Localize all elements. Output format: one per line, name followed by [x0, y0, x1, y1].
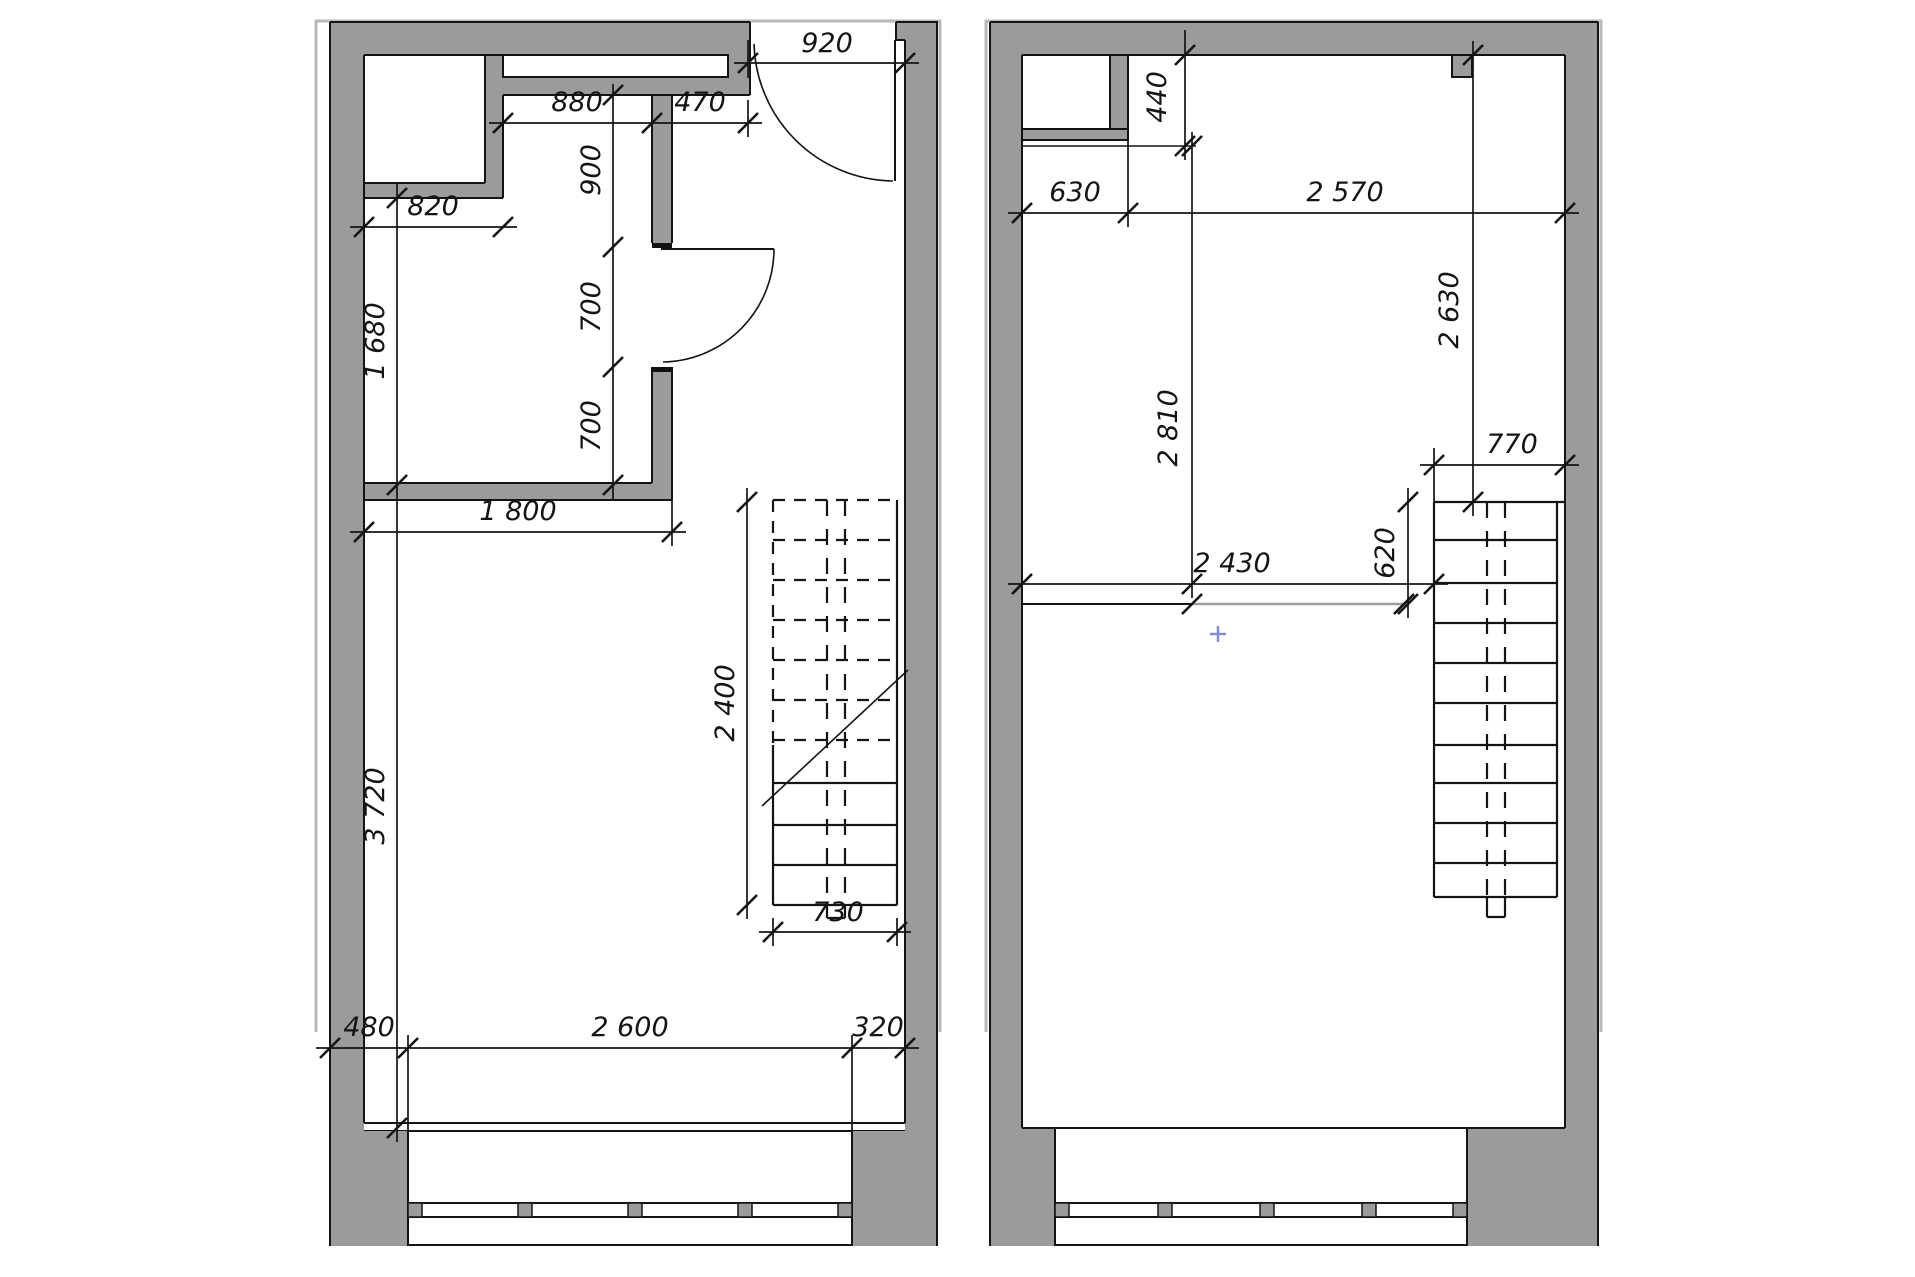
dim-label-480: 480 — [343, 1012, 395, 1043]
dim-label-900: 900 — [576, 144, 607, 196]
dim-label-440: 440 — [1142, 71, 1173, 123]
dim-label-2430: 2 430 — [1193, 548, 1270, 579]
dim-label-630: 630 — [1049, 177, 1101, 208]
dim-label-2570: 2 570 — [1306, 177, 1383, 208]
dim-label-3720: 3 720 — [360, 767, 391, 844]
dim-label-2600: 2 600 — [591, 1012, 668, 1043]
dim-label-770: 770 — [1486, 429, 1538, 460]
wall-niche — [503, 55, 728, 77]
dim-label-1680: 1 680 — [360, 302, 391, 379]
dim-label-2630: 2 630 — [1434, 271, 1465, 348]
dim-label-700-upper: 700 — [576, 281, 607, 333]
dim-label-1800: 1 800 — [479, 496, 556, 527]
dim-label-920: 920 — [801, 28, 853, 59]
floor-plan-drawing: 920 880 470 900 700 700 820 1 680 1 800 … — [0, 0, 1915, 1277]
loggia-window-band — [1055, 1203, 1467, 1217]
door-jamb-cap — [652, 367, 672, 372]
floor-plan-canvas: 920 880 470 900 700 700 820 1 680 1 800 … — [0, 0, 1915, 1277]
dim-label-2810: 2 810 — [1153, 389, 1184, 466]
loggia-window-band — [408, 1203, 852, 1217]
dim-label-730: 730 — [812, 897, 864, 928]
dim-label-320: 320 — [852, 1012, 904, 1043]
dim-label-2400: 2 400 — [710, 664, 741, 741]
door-jamb-cap — [652, 243, 672, 248]
dim-label-470: 470 — [674, 87, 726, 118]
dim-label-880: 880 — [551, 87, 603, 118]
dim-label-700-lower: 700 — [576, 400, 607, 452]
drawing-background — [0, 0, 1915, 1277]
dim-label-820: 820 — [407, 191, 459, 222]
dim-label-620: 620 — [1370, 527, 1401, 579]
